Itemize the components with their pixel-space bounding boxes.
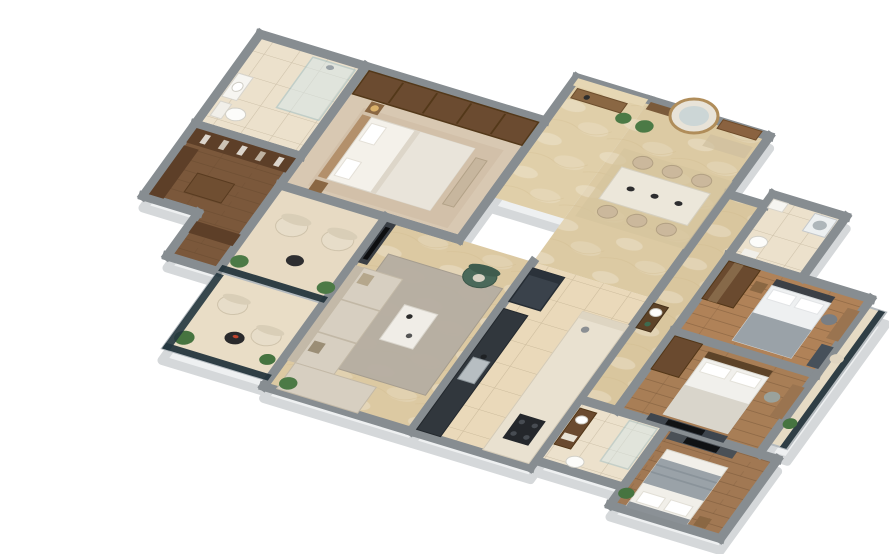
dining-chair xyxy=(662,165,682,178)
dining-chair xyxy=(656,223,676,236)
toilet-bowl xyxy=(750,236,768,247)
toilet-bowl xyxy=(566,456,584,467)
wash-basin xyxy=(650,309,662,317)
mirror-glass xyxy=(679,106,709,126)
apartment-3d-floor-plan xyxy=(0,0,889,554)
dining-chair xyxy=(597,205,617,218)
vanity-basin xyxy=(576,416,588,424)
dining-chair xyxy=(627,214,647,227)
dining-chair xyxy=(633,156,653,169)
dining-chair xyxy=(692,174,712,187)
toilet-bowl xyxy=(226,108,246,121)
page-background xyxy=(0,0,889,554)
